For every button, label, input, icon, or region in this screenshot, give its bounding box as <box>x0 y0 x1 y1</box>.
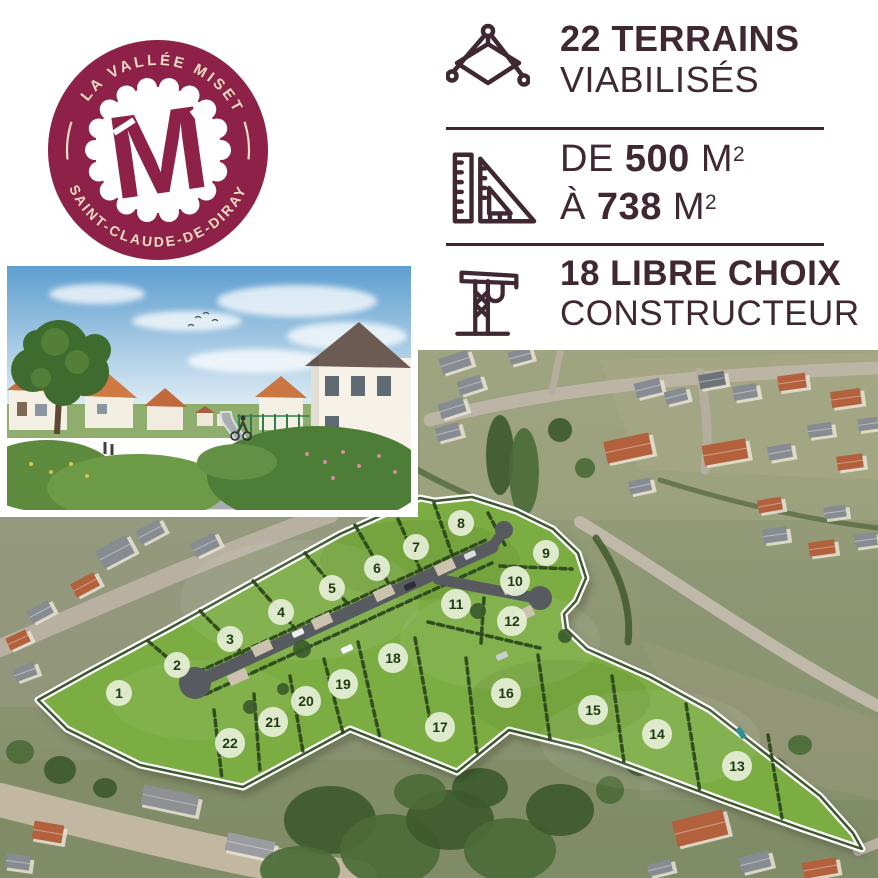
libre-choix-count: 18 LIBRE CHOIX <box>560 254 860 294</box>
svg-text:9: 9 <box>542 545 550 561</box>
svg-text:18: 18 <box>385 650 401 666</box>
terrains-count: 22 TERRAINS <box>560 18 800 59</box>
surface-min: DE 500 M2 <box>560 138 745 186</box>
lot-marker: 11 <box>441 589 471 619</box>
svg-text:13: 13 <box>729 758 745 774</box>
svg-text:5: 5 <box>328 580 336 596</box>
svg-text:10: 10 <box>507 573 523 589</box>
info-row-constructeur: 18 LIBRE CHOIX CONSTRUCTEUR <box>560 254 860 334</box>
surface-max: À 738 M2 <box>560 186 745 234</box>
svg-text:11: 11 <box>449 596 464 612</box>
lot-marker: 22 <box>215 728 245 758</box>
svg-text:4: 4 <box>277 604 285 620</box>
terrains-label: VIABILISÉS <box>560 59 800 100</box>
flower-hedges <box>7 426 411 510</box>
lot-marker: 17 <box>425 712 455 742</box>
lot-marker: 18 <box>378 643 408 673</box>
lot-marker: 3 <box>217 626 243 652</box>
constructeur-label: CONSTRUCTEUR <box>560 294 860 334</box>
lot-marker: 21 <box>258 707 288 737</box>
lot-marker: 5 <box>319 575 345 601</box>
svg-text:20: 20 <box>298 693 314 709</box>
svg-text:17: 17 <box>432 719 448 735</box>
pedestrians <box>105 442 112 455</box>
street-scene <box>7 266 411 510</box>
svg-text:12: 12 <box>504 613 520 629</box>
svg-text:21: 21 <box>265 714 281 730</box>
survey-plot-icon <box>446 22 530 109</box>
crane-icon <box>452 260 528 343</box>
lot-marker: 19 <box>328 669 358 699</box>
lot-marker: 2 <box>164 652 190 678</box>
svg-text:3: 3 <box>226 631 234 647</box>
svg-text:22: 22 <box>222 735 238 751</box>
lot-marker: 9 <box>533 540 559 566</box>
lot-marker: 12 <box>497 606 527 636</box>
lot-marker: 16 <box>491 678 521 708</box>
lot-marker: 6 <box>364 555 390 581</box>
divider-line <box>446 127 824 130</box>
svg-text:16: 16 <box>498 685 514 701</box>
lot-marker: 13 <box>722 751 752 781</box>
lot-marker: 20 <box>291 686 321 716</box>
logo-monogram: M <box>100 81 216 225</box>
lot-marker: 15 <box>578 695 608 725</box>
street-render-photo <box>0 259 418 517</box>
set-square-icon <box>450 146 538 235</box>
svg-text:7: 7 <box>412 539 420 555</box>
logo-badge: LA VALLÉE MISET SAINT-CLAUDE-DE-DIRAY M <box>46 38 270 262</box>
info-row-terrains: 22 TERRAINS VIABILISÉS <box>560 18 800 100</box>
svg-text:14: 14 <box>649 726 665 742</box>
svg-text:15: 15 <box>585 702 601 718</box>
svg-text:8: 8 <box>457 515 465 531</box>
svg-text:6: 6 <box>373 560 381 576</box>
svg-text:1: 1 <box>115 685 123 701</box>
lot-marker: 10 <box>500 566 530 596</box>
svg-text:2: 2 <box>173 657 181 673</box>
lot-marker: 4 <box>268 599 294 625</box>
info-row-surface: DE 500 M2 À 738 M2 <box>560 138 745 234</box>
lot-marker: 8 <box>448 510 474 536</box>
flyer-canvas: 12345678910111213141516171819202122 <box>0 0 878 878</box>
divider-line <box>446 243 824 246</box>
lot-marker: 14 <box>642 719 672 749</box>
svg-text:19: 19 <box>335 676 351 692</box>
lot-marker: 1 <box>106 680 132 706</box>
lot-marker: 7 <box>403 534 429 560</box>
